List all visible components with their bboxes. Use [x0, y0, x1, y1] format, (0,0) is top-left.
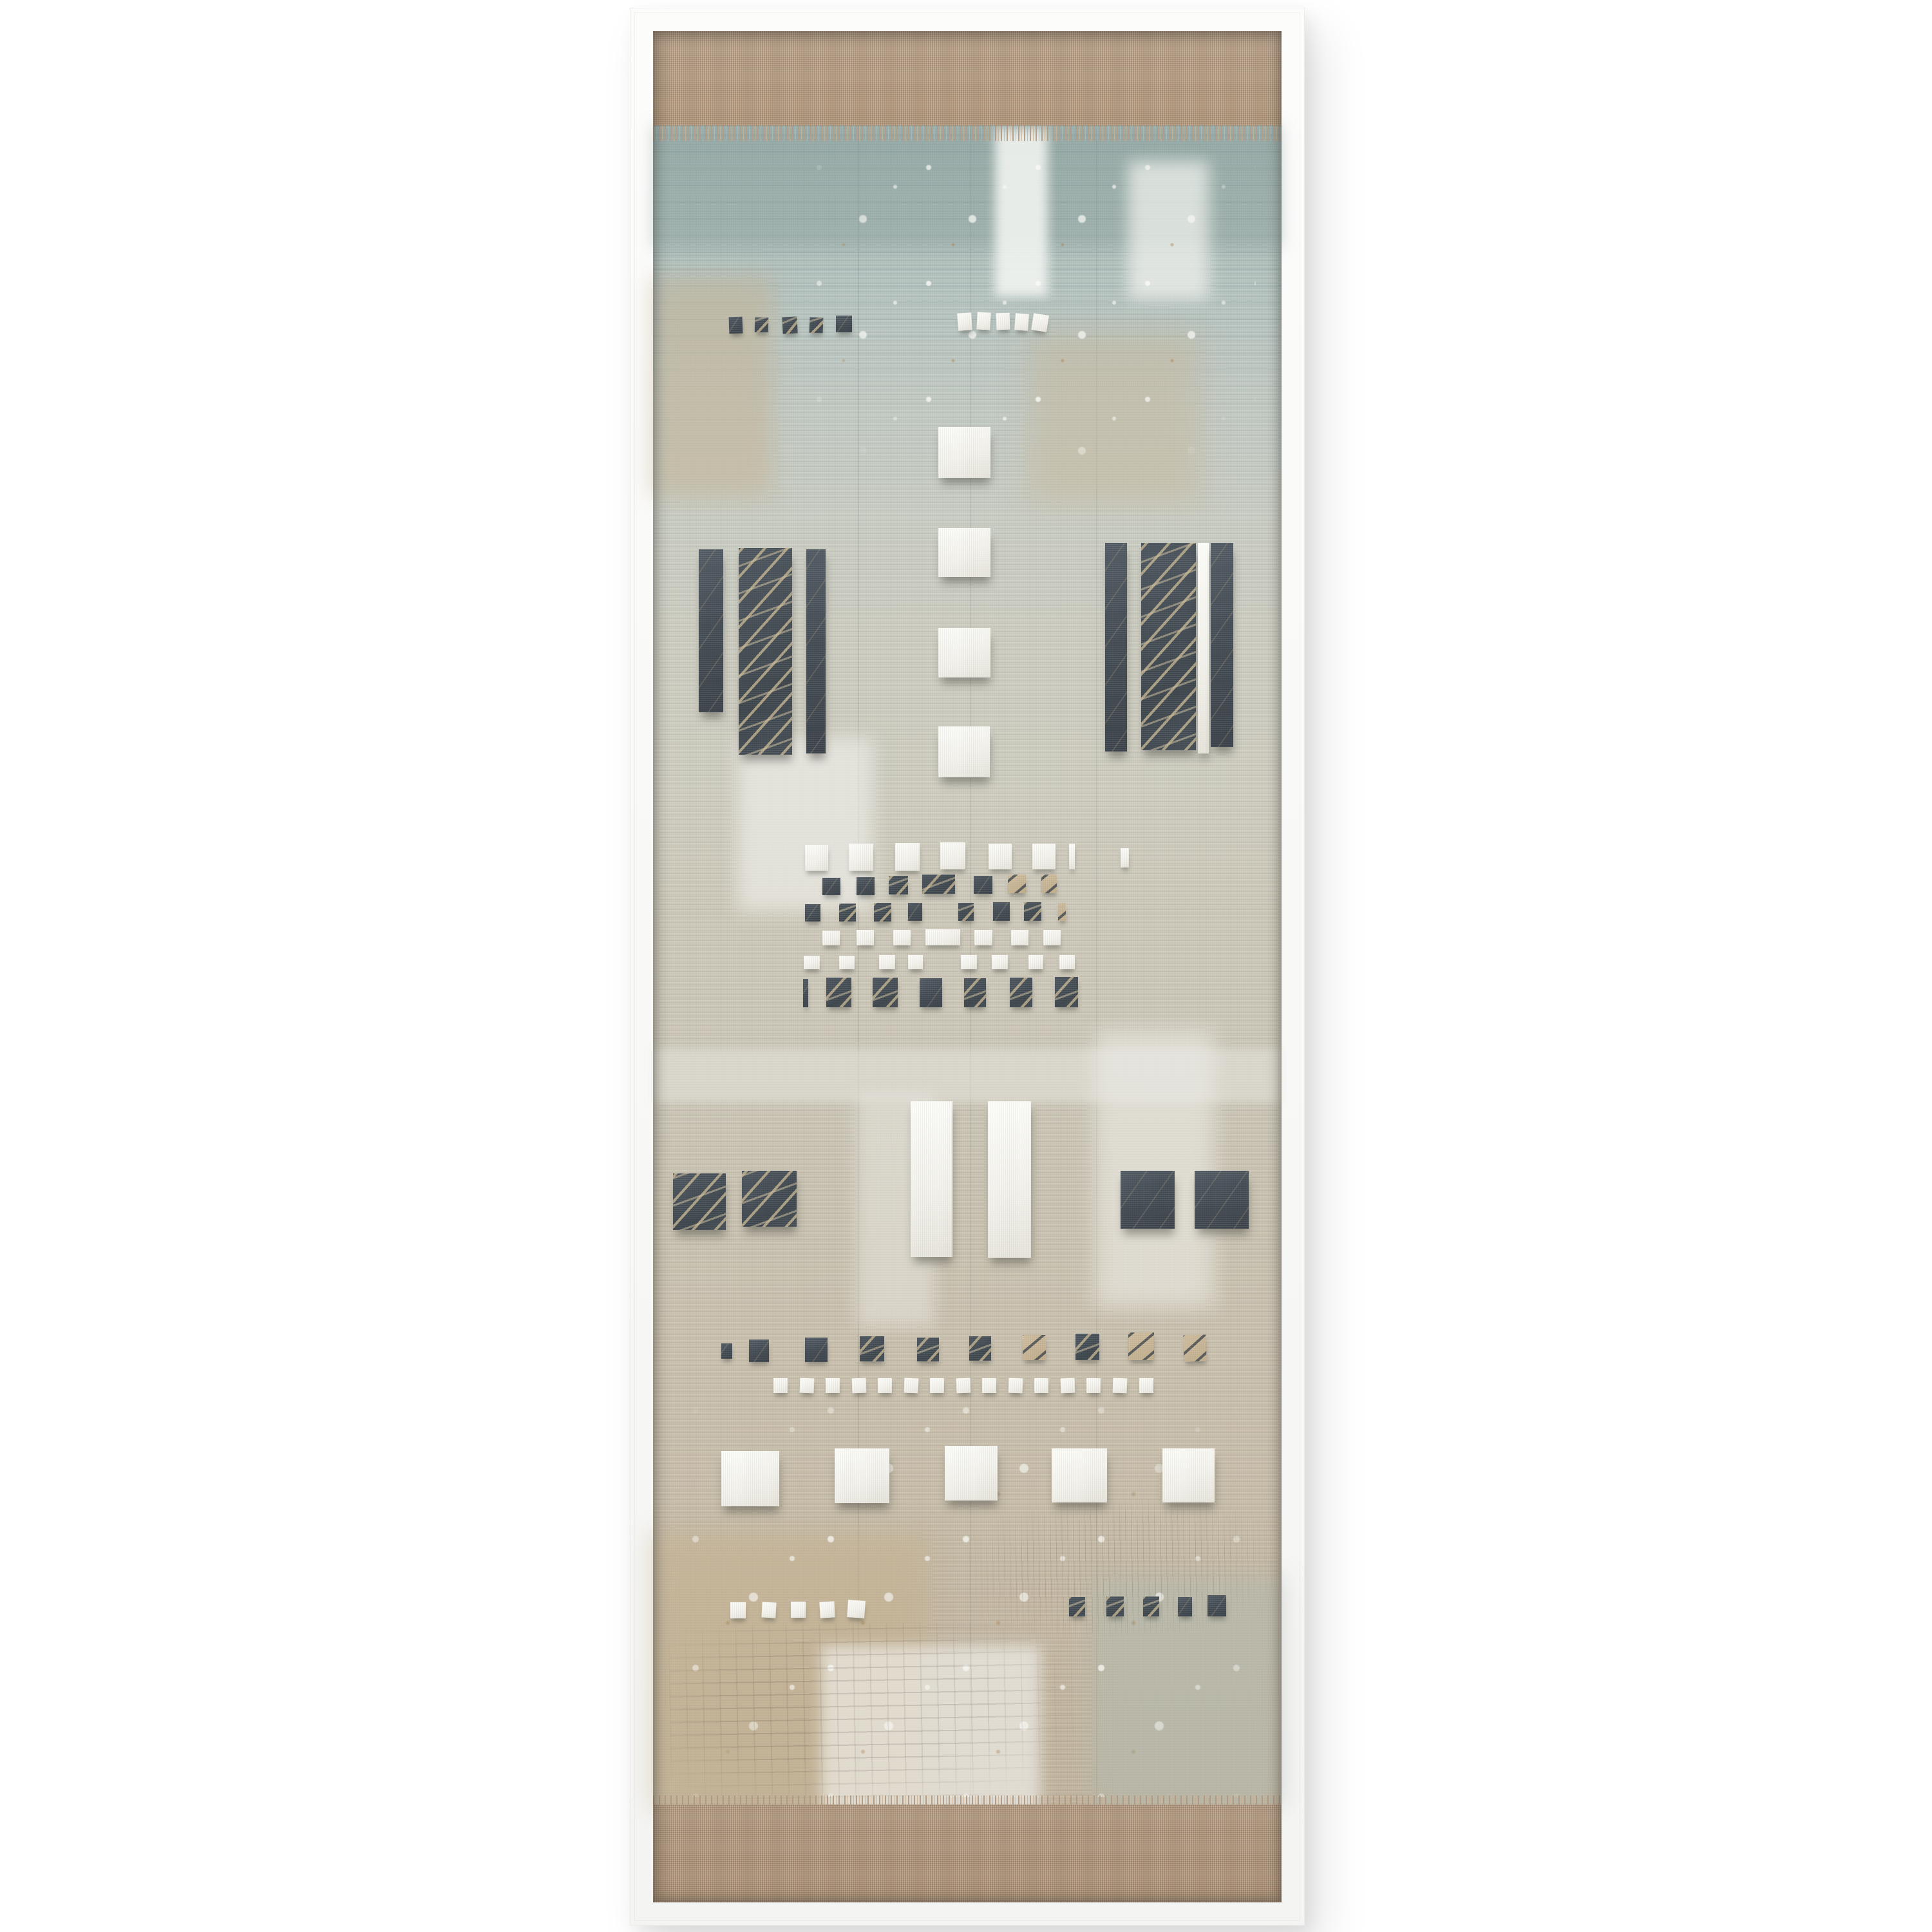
- collage-piece-dark: [1207, 1595, 1226, 1616]
- collage-piece-dark: [908, 903, 922, 921]
- collage-piece-dark: [1195, 1171, 1249, 1229]
- collage-piece-marbled: [964, 978, 986, 1007]
- collage-piece-dark: [857, 877, 875, 895]
- collage-piece-white: [1069, 844, 1075, 869]
- collage-piece-dark: [806, 549, 826, 753]
- collage-piece-dark: [699, 549, 723, 712]
- collage-piece-marbled: [1055, 977, 1078, 1007]
- collage-piece-white: [908, 955, 923, 969]
- collage-piece-white: [938, 427, 990, 478]
- product-photo: [0, 0, 1932, 1932]
- collage-piece-white: [1032, 844, 1056, 869]
- collage-piece-tan: [1058, 903, 1066, 921]
- collage-piece-white: [1162, 1448, 1215, 1502]
- collage-piece-marbled: [1010, 978, 1032, 1007]
- collage-piece-dark: [749, 1340, 769, 1362]
- collage-piece-dark: [993, 902, 1010, 921]
- collage-piece-marbled: [969, 1336, 991, 1361]
- collage-piece-marbled: [1075, 1334, 1099, 1360]
- collage-piece-white: [1061, 1378, 1075, 1394]
- collage-piece-white: [1139, 1378, 1153, 1393]
- collage-piece-white: [878, 1378, 892, 1393]
- collage-piece-white: [996, 313, 1010, 330]
- collage-piece-white: [992, 955, 1008, 969]
- collage-piece-white: [1198, 543, 1209, 753]
- collage-piece-white: [930, 1378, 944, 1393]
- collage-piece-dark: [1211, 543, 1233, 747]
- collage-piece-dark: [1178, 1597, 1192, 1616]
- collage-piece-white: [945, 1446, 998, 1501]
- collage-piece-white: [730, 1602, 746, 1618]
- collage-piece-tan: [1008, 875, 1026, 893]
- collage-piece-marbled: [755, 317, 768, 332]
- collage-piece-dark: [721, 1343, 732, 1359]
- collage-piece-white: [1028, 955, 1043, 969]
- collage-piece-marbled: [826, 978, 851, 1007]
- collage-layer: [0, 0, 1932, 1932]
- collage-piece-white: [1121, 848, 1129, 867]
- collage-piece-tan: [1041, 875, 1057, 893]
- collage-piece-white: [822, 931, 840, 945]
- collage-piece-white: [1059, 955, 1075, 969]
- collage-piece-white: [956, 1378, 971, 1394]
- collage-piece-white: [721, 1451, 779, 1506]
- collage-piece-marbled: [1106, 1596, 1124, 1616]
- collage-piece-dark: [1121, 1171, 1175, 1229]
- collage-piece-white: [895, 843, 920, 871]
- collage-piece-marbled: [810, 317, 824, 334]
- collage-piece-white: [857, 930, 874, 945]
- collage-piece-marbled: [1024, 902, 1041, 921]
- collage-piece-white: [1113, 1378, 1128, 1394]
- collage-piece-white: [1086, 1378, 1101, 1393]
- collage-piece-white: [904, 1378, 919, 1394]
- collage-piece-white: [826, 1378, 840, 1393]
- collage-piece-white: [791, 1602, 806, 1618]
- collage-piece-marbled: [922, 875, 955, 894]
- collage-piece-white: [835, 1448, 889, 1503]
- collage-piece-white: [974, 930, 992, 945]
- collage-piece-white: [1011, 930, 1028, 945]
- collage-piece-white: [1043, 930, 1061, 945]
- collage-piece-marbled: [1143, 1596, 1159, 1616]
- collage-piece-white: [982, 1378, 996, 1393]
- collage-piece-marbled: [958, 903, 974, 921]
- collage-piece-tan: [1183, 1334, 1206, 1361]
- collage-piece-white: [849, 844, 873, 871]
- collage-piece-white: [1034, 1378, 1048, 1393]
- collage-piece-dark: [805, 904, 820, 922]
- collage-piece-white: [1052, 1448, 1107, 1502]
- collage-piece-dark: [920, 978, 942, 1007]
- collage-piece-white: [957, 312, 972, 330]
- collage-piece-marbled: [873, 978, 898, 1007]
- collage-piece-white: [1031, 313, 1049, 332]
- collage-piece-marbled: [860, 1336, 884, 1361]
- collage-piece-white: [911, 1101, 952, 1257]
- collage-piece-white: [879, 955, 895, 969]
- collage-piece-dark: [729, 317, 743, 334]
- collage-piece-marbled: [917, 1338, 939, 1361]
- collage-piece-white: [761, 1602, 776, 1618]
- collage-piece-white: [893, 930, 911, 945]
- collage-piece-marbled: [839, 904, 856, 922]
- collage-piece-dark: [805, 1338, 828, 1362]
- collage-piece-marbled: [1069, 1597, 1085, 1616]
- collage-piece-white: [940, 842, 965, 869]
- collage-piece-white: [839, 956, 855, 969]
- collage-piece-white: [1009, 1378, 1023, 1394]
- collage-piece-white: [852, 1378, 867, 1394]
- collage-piece-white: [938, 726, 990, 777]
- collage-piece-marbled: [874, 903, 891, 922]
- collage-piece-marbled: [889, 876, 908, 895]
- collage-piece-marbled: [782, 316, 797, 334]
- collage-piece-marbled: [742, 1171, 797, 1227]
- collage-piece-white: [804, 956, 820, 969]
- collage-piece-dark: [974, 876, 992, 894]
- collage-piece-tan: [1128, 1332, 1154, 1360]
- collage-piece-tan: [1023, 1335, 1046, 1360]
- collage-piece-marbled: [1141, 543, 1196, 750]
- collage-piece-marbled: [739, 548, 792, 755]
- collage-piece-white: [1014, 313, 1029, 330]
- collage-piece-white: [847, 1600, 866, 1618]
- collage-piece-white: [800, 1378, 815, 1394]
- collage-piece-white: [989, 844, 1012, 869]
- collage-piece-white: [773, 1378, 788, 1393]
- collage-piece-white: [819, 1601, 835, 1618]
- collage-piece-white: [961, 955, 977, 969]
- collage-piece-white: [925, 929, 960, 945]
- collage-piece-dark: [1105, 543, 1127, 752]
- collage-piece-white: [805, 845, 828, 871]
- collage-piece-dark: [822, 878, 840, 895]
- collage-piece-dark: [803, 979, 808, 1007]
- collage-piece-white: [988, 1101, 1031, 1258]
- collage-piece-white: [938, 628, 990, 677]
- collage-piece-white: [938, 528, 990, 577]
- collage-piece-dark: [836, 316, 852, 332]
- collage-piece-marbled: [673, 1173, 726, 1230]
- collage-piece-white: [976, 312, 990, 330]
